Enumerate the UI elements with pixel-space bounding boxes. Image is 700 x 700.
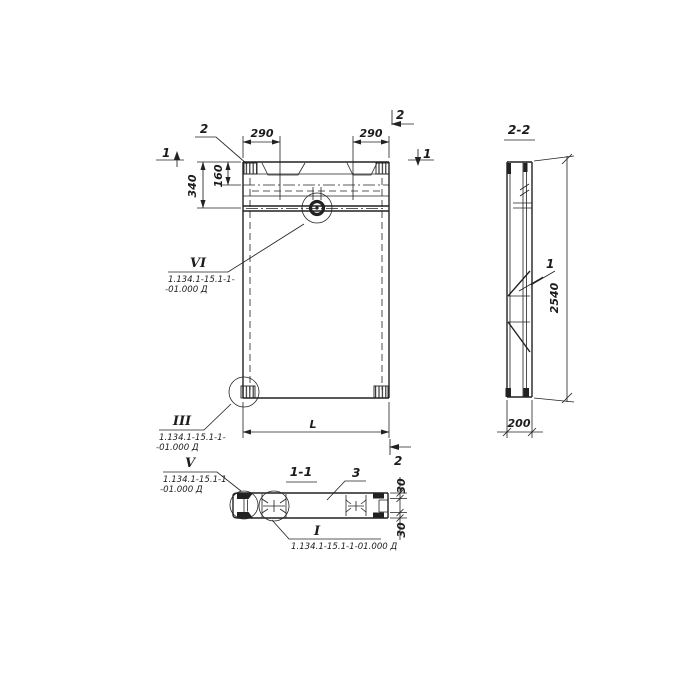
detail-callout-v: V 1.134.1-15.1-1 -01.000 Д: [160, 456, 241, 495]
callout-i-numeral: I: [313, 524, 321, 539]
section-mark-2-bottom: 2: [389, 439, 411, 468]
section-mark-2-top-label: 2: [396, 108, 404, 122]
callout-1-label: 1: [546, 257, 554, 271]
detail-callout-vi: VI 1.134.1-15.1-1- -01.000 Д: [165, 224, 304, 295]
section-mark-2-top: 2: [391, 108, 414, 127]
callout-iii-numeral: III: [172, 414, 192, 429]
section-mark-1-left-label: 1: [162, 146, 170, 160]
callout-3-panel: 3: [327, 466, 366, 500]
keyway-detail-left: [262, 494, 286, 518]
dim-length-label: L: [309, 418, 316, 431]
callout-2-label: 2: [200, 122, 208, 136]
drawing-sheet: 290 290 160 340 L 2: [0, 0, 700, 700]
lifting-loop-detail: [302, 187, 332, 223]
callout-vi-doc2: -01.000 Д: [165, 285, 208, 295]
section-mark-1-left: 1: [156, 146, 184, 167]
dim-30-group: 30 30: [390, 477, 408, 540]
callout-vi-doc1: 1.134.1-15.1-1-: [168, 275, 235, 285]
dim-290-left-label: 290: [251, 127, 274, 140]
section-mark-1-right: 1: [408, 147, 434, 166]
callout-iii-doc2: -01.000 Д: [156, 443, 199, 453]
section-mark-2-bottom-label: 2: [394, 454, 402, 468]
dim-160-label: 160: [212, 164, 225, 187]
dim-2540-label: 2540: [548, 282, 561, 313]
side-view-title: 2-2: [508, 122, 531, 137]
dim-length-L: L: [243, 402, 389, 438]
section-mark-1-right-label: 1: [423, 147, 431, 161]
bottom-bearing-ribs: [229, 377, 388, 407]
callout-v-doc1: 1.134.1-15.1-1: [163, 475, 227, 485]
detail-callout-iii: III 1.134.1-15.1-1- -01.000 Д: [156, 404, 231, 453]
dim-200-label: 200: [508, 417, 531, 430]
callout-v-doc2: -01.000 Д: [160, 485, 203, 495]
section-title: 1-1: [290, 464, 313, 479]
callout-v-numeral: V: [185, 456, 197, 471]
dim-200: 200: [497, 400, 543, 438]
callout-3-label: 3: [352, 466, 360, 480]
callout-iii-doc1: 1.134.1-15.1-1-: [159, 433, 226, 443]
top-corner-ribs: [244, 163, 389, 174]
callout-2-top-left: 2: [195, 122, 247, 164]
dim-160: 160: [212, 162, 241, 187]
callout-vi-numeral: VI: [190, 256, 207, 271]
side-view-2-2: 2-2 1 2540 200: [497, 122, 574, 438]
dim-340-label: 340: [186, 174, 199, 197]
technical-drawing-canvas: 290 290 160 340 L 2: [0, 0, 700, 700]
callout-i-doc: 1.134.1-15.1-1-01.000 Д: [291, 542, 398, 552]
detail-callout-i: I 1.134.1-15.1-1-01.000 Д: [272, 520, 398, 552]
keyway-detail-right: [346, 495, 366, 516]
dim-30-bottom-label: 30: [395, 522, 408, 538]
dim-290-right-label: 290: [360, 127, 383, 140]
dim-30-top-label: 30: [395, 478, 408, 494]
